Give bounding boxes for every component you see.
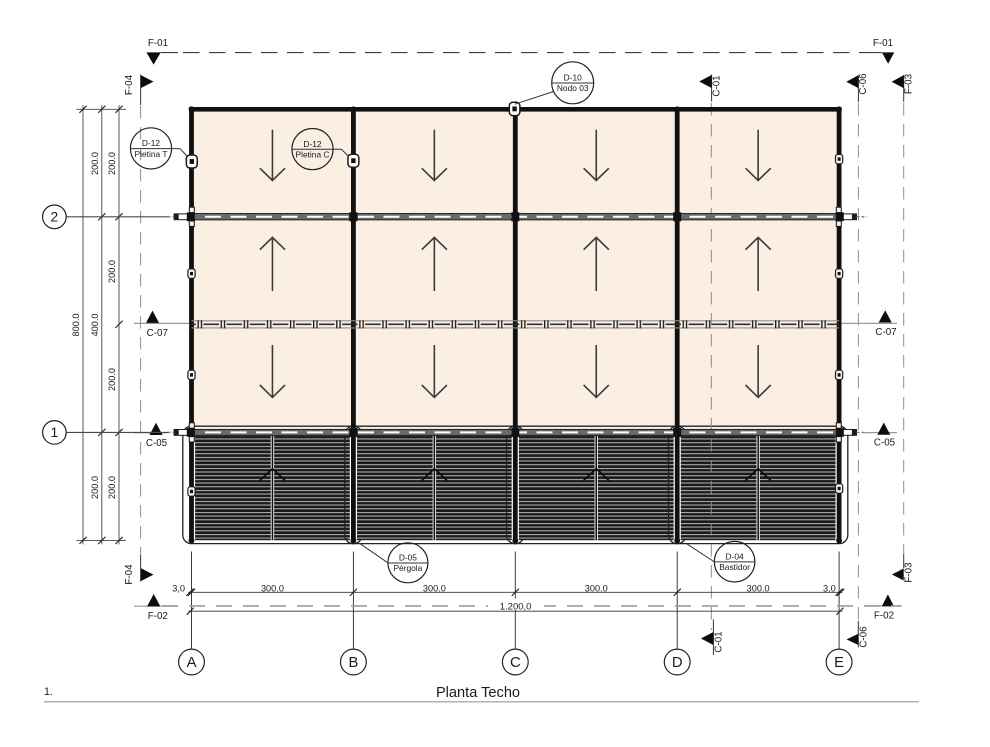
svg-text:200.0: 200.0 — [90, 476, 100, 499]
svg-text:D-05: D-05 — [399, 553, 417, 563]
svg-text:Planta Techo: Planta Techo — [436, 685, 520, 701]
svg-text:C-07: C-07 — [875, 327, 896, 338]
svg-text:C-06: C-06 — [858, 73, 869, 95]
svg-text:300.0: 300.0 — [585, 584, 608, 594]
svg-text:1: 1 — [51, 425, 59, 440]
svg-text:Pérgola: Pérgola — [393, 563, 422, 573]
svg-text:F-02: F-02 — [874, 611, 894, 622]
svg-text:D-10: D-10 — [564, 73, 582, 83]
svg-text:C-06: C-06 — [859, 626, 870, 648]
svg-text:C-01: C-01 — [713, 631, 724, 652]
svg-text:3,0: 3,0 — [172, 584, 185, 594]
svg-text:F-04: F-04 — [124, 74, 135, 95]
svg-text:1.: 1. — [44, 686, 53, 698]
svg-text:F-01: F-01 — [148, 38, 168, 49]
svg-text:Bastidor: Bastidor — [719, 562, 750, 572]
svg-text:800.0: 800.0 — [71, 314, 81, 337]
svg-text:C-05: C-05 — [874, 437, 896, 448]
svg-text:Nodo 03: Nodo 03 — [557, 83, 589, 93]
svg-text:F-03: F-03 — [903, 73, 914, 94]
svg-text:Pletina C: Pletina C — [296, 150, 330, 160]
svg-text:C-07: C-07 — [147, 328, 168, 339]
svg-text:400.0: 400.0 — [90, 314, 100, 337]
svg-text:D: D — [672, 655, 683, 671]
svg-text:1.200,0: 1.200,0 — [500, 602, 532, 613]
svg-text:F-02: F-02 — [148, 611, 168, 622]
svg-text:C: C — [510, 655, 521, 671]
svg-text:B: B — [348, 655, 358, 671]
svg-text:200.0: 200.0 — [107, 260, 117, 283]
svg-text:D-12: D-12 — [303, 139, 321, 149]
svg-text:200.0: 200.0 — [90, 152, 100, 175]
svg-text:A: A — [187, 655, 197, 671]
svg-text:300.0: 300.0 — [423, 584, 446, 594]
svg-text:D-04: D-04 — [726, 552, 744, 562]
svg-text:Pletina T: Pletina T — [135, 149, 168, 159]
svg-text:200.0: 200.0 — [107, 368, 117, 391]
svg-text:E: E — [834, 655, 844, 671]
svg-text:2: 2 — [51, 210, 59, 225]
svg-text:300.0: 300.0 — [747, 584, 770, 594]
svg-text:200.0: 200.0 — [107, 476, 117, 499]
svg-text:300.0: 300.0 — [261, 584, 284, 594]
svg-text:F-04: F-04 — [124, 564, 135, 585]
svg-text:3,0: 3,0 — [823, 584, 836, 594]
svg-text:C-01: C-01 — [712, 75, 723, 96]
svg-text:C-05: C-05 — [146, 438, 168, 449]
svg-text:D-12: D-12 — [142, 138, 160, 148]
svg-text:F-01: F-01 — [873, 38, 893, 49]
svg-text:F-03: F-03 — [903, 562, 914, 583]
svg-text:200.0: 200.0 — [107, 152, 117, 175]
